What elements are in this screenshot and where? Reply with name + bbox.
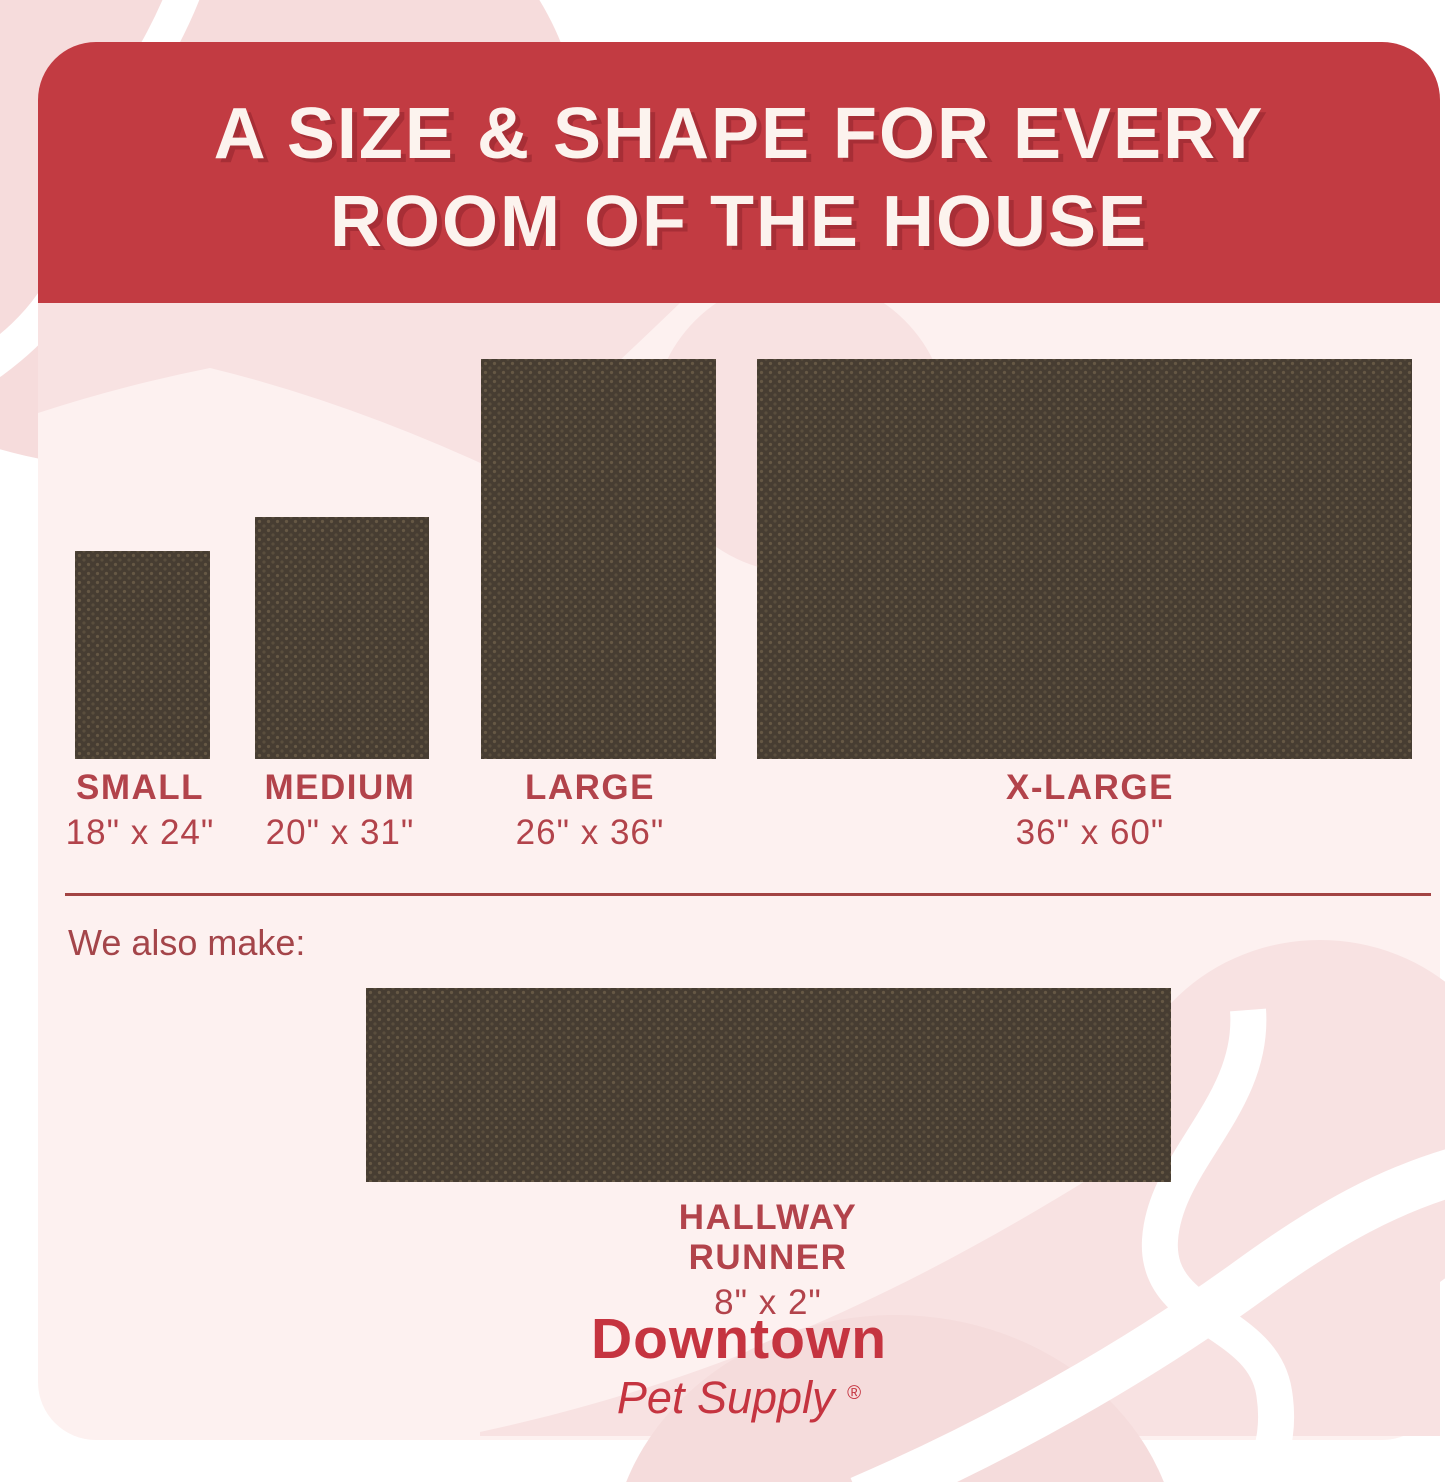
size-dimensions: 20" x 31"	[240, 813, 440, 853]
size-name: SMALL	[40, 768, 240, 808]
section-divider	[65, 893, 1431, 896]
size-name: MEDIUM	[240, 768, 440, 808]
size-swatch-medium	[255, 517, 429, 759]
title-line-2: ROOM OF THE HOUSE	[38, 178, 1440, 266]
size-dimensions: 36" x 60"	[990, 813, 1190, 853]
brand-name: Downtown	[489, 1306, 989, 1372]
size-swatch-large	[481, 359, 716, 759]
size-label-hallway-runner: HALLWAY RUNNER 8" x 2"	[618, 1198, 918, 1323]
size-dimensions: 26" x 36"	[490, 813, 690, 853]
infographic-canvas: A SIZE & SHAPE FOR EVERY ROOM OF THE HOU…	[0, 0, 1445, 1482]
size-name: HALLWAY RUNNER	[618, 1198, 918, 1278]
page-title: A SIZE & SHAPE FOR EVERY ROOM OF THE HOU…	[38, 90, 1440, 266]
brand-tagline: Pet Supply ®	[489, 1372, 989, 1424]
also-make-label: We also make:	[68, 922, 305, 964]
size-label-large: LARGE 26" x 36"	[490, 768, 690, 853]
size-swatch-xlarge	[757, 359, 1412, 759]
brand-tagline-text: Pet Supply	[617, 1372, 835, 1423]
title-line-1: A SIZE & SHAPE FOR EVERY	[38, 90, 1440, 178]
size-label-small: SMALL 18" x 24"	[40, 768, 240, 853]
size-swatch-small	[75, 551, 210, 759]
size-name: X-LARGE	[990, 768, 1190, 808]
registered-trademark-symbol: ®	[847, 1383, 861, 1404]
size-name: LARGE	[490, 768, 690, 808]
brand-logo: Downtown Pet Supply ®	[489, 1306, 989, 1424]
size-label-xlarge: X-LARGE 36" x 60"	[990, 768, 1190, 853]
size-swatch-hallway-runner	[366, 988, 1171, 1182]
size-dimensions: 18" x 24"	[40, 813, 240, 853]
size-label-medium: MEDIUM 20" x 31"	[240, 768, 440, 853]
